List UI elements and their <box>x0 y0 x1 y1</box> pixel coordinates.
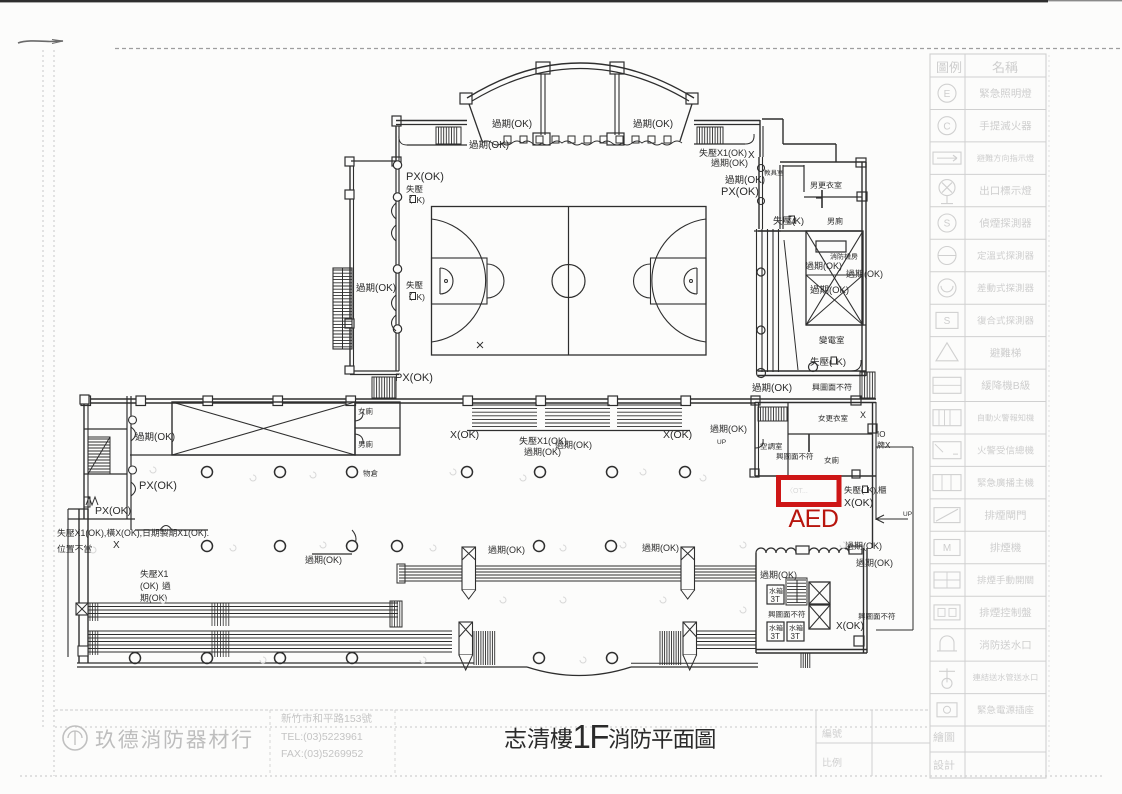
svg-text:X(OK): X(OK) <box>844 497 873 509</box>
svg-text:(OK): (OK) <box>511 119 532 130</box>
svg-text:X1(OK).: X1(OK). <box>177 528 209 538</box>
svg-text:FAX:(03)5269952: FAX:(03)5269952 <box>281 748 363 760</box>
svg-text:UP: UP <box>717 439 726 446</box>
svg-text:(OK): (OK) <box>823 261 842 271</box>
svg-text:(OK): (OK) <box>863 541 882 551</box>
svg-text:K),: K), <box>868 485 879 495</box>
svg-text:(OK): (OK) <box>140 581 159 591</box>
svg-text:3T: 3T <box>771 632 780 641</box>
svg-text:(OK): (OK) <box>729 158 748 168</box>
svg-text:(OK): (OK) <box>778 570 797 580</box>
svg-text:153: 153 <box>344 713 362 725</box>
svg-text:M: M <box>943 543 951 554</box>
svg-text:K): K) <box>837 357 847 368</box>
svg-text:(OK): (OK) <box>488 140 509 151</box>
svg-text:(OK): (OK) <box>573 440 592 450</box>
svg-text:IO: IO <box>877 430 885 439</box>
svg-text:(OK): (OK) <box>864 269 883 279</box>
svg-text:K): K) <box>417 195 426 205</box>
svg-text:X: X <box>113 540 120 551</box>
svg-text:K): K) <box>795 216 805 227</box>
svg-text:PX(OK): PX(OK) <box>139 480 177 492</box>
svg-text:B: B <box>1013 380 1020 392</box>
svg-text:X: X <box>860 410 866 420</box>
svg-text:X: X <box>748 150 755 161</box>
svg-text:(OK): (OK) <box>506 545 525 555</box>
svg-text:E: E <box>944 89 951 100</box>
svg-text:PX(OK): PX(OK) <box>406 171 444 183</box>
svg-text:X(OK),: X(OK), <box>115 528 142 538</box>
svg-text:S: S <box>944 316 951 327</box>
svg-text:PX(OK): PX(OK) <box>721 186 759 198</box>
svg-text:(OK): (OK) <box>652 119 673 130</box>
svg-text:TEL:(03)5223961: TEL:(03)5223961 <box>281 731 363 743</box>
svg-text:(OK): (OK) <box>660 543 679 553</box>
svg-text:X: X <box>885 441 891 450</box>
svg-text:PX(OK): PX(OK) <box>95 505 131 517</box>
svg-text:(OK): (OK) <box>375 283 396 294</box>
svg-text:X1(OK): X1(OK) <box>537 436 567 446</box>
svg-text:(OK): (OK) <box>829 285 849 296</box>
svg-text:(OK): (OK) <box>874 558 893 568</box>
svg-text:X1: X1 <box>158 569 169 579</box>
svg-text:AED: AED <box>789 505 839 533</box>
svg-text:X(OK): X(OK) <box>450 429 479 441</box>
svg-text:X1(OK): X1(OK) <box>717 148 747 158</box>
svg-text:(OK): (OK) <box>744 175 765 186</box>
svg-text:(OK): (OK) <box>149 593 168 603</box>
svg-text:(OK): (OK) <box>728 424 747 434</box>
svg-text:PX(OK): PX(OK) <box>395 372 433 384</box>
svg-text:(OK): (OK) <box>154 432 175 443</box>
svg-text:(OK): (OK) <box>542 447 561 457</box>
svg-text:X(OK): X(OK) <box>663 429 692 441</box>
svg-text:OT...: OT... <box>793 488 808 495</box>
svg-text:K): K) <box>417 292 426 302</box>
svg-text:X(OK): X(OK) <box>836 621 864 632</box>
svg-text:C: C <box>943 121 950 132</box>
svg-text:X1(OK),: X1(OK), <box>75 528 107 538</box>
svg-text:UP: UP <box>903 511 912 518</box>
svg-text:1F: 1F <box>573 718 609 755</box>
svg-text:(OK): (OK) <box>323 555 342 565</box>
svg-text:(OK): (OK) <box>771 383 792 394</box>
svg-text:3T: 3T <box>771 595 780 604</box>
svg-text:S: S <box>944 219 951 230</box>
svg-text:3T: 3T <box>791 632 800 641</box>
